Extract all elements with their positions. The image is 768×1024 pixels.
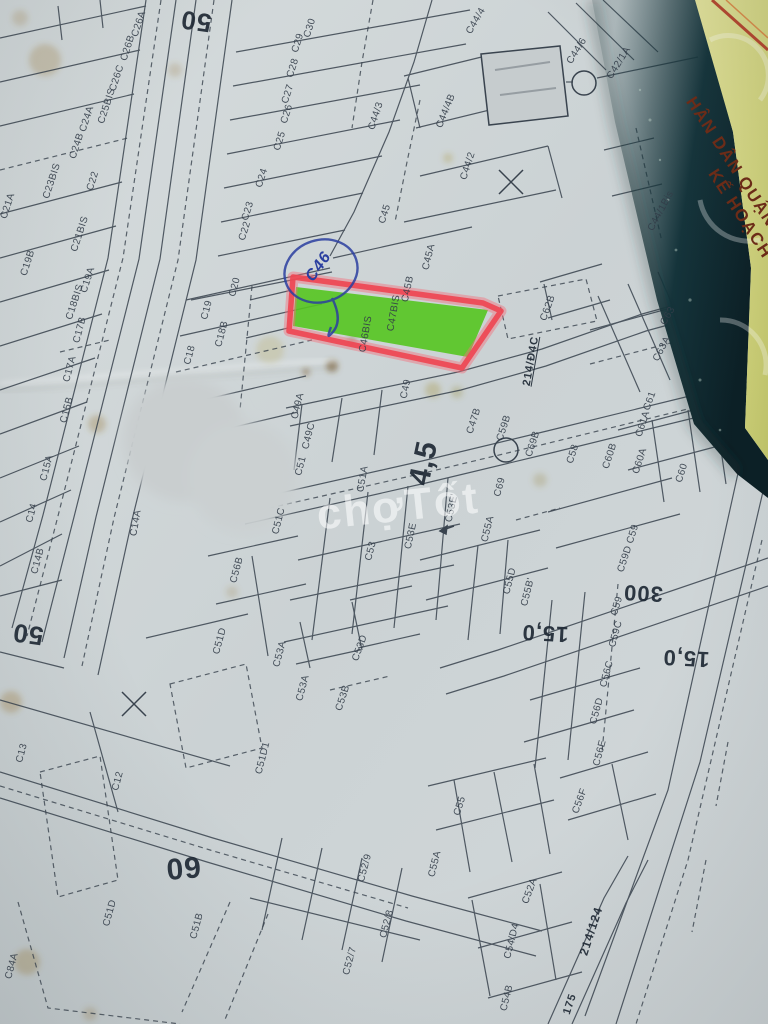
cadastral-map-photo: C26AC26BC26CC25BISC24AC24BC23BISC22C21AC… <box>0 0 768 1024</box>
building-footprint <box>481 46 568 125</box>
